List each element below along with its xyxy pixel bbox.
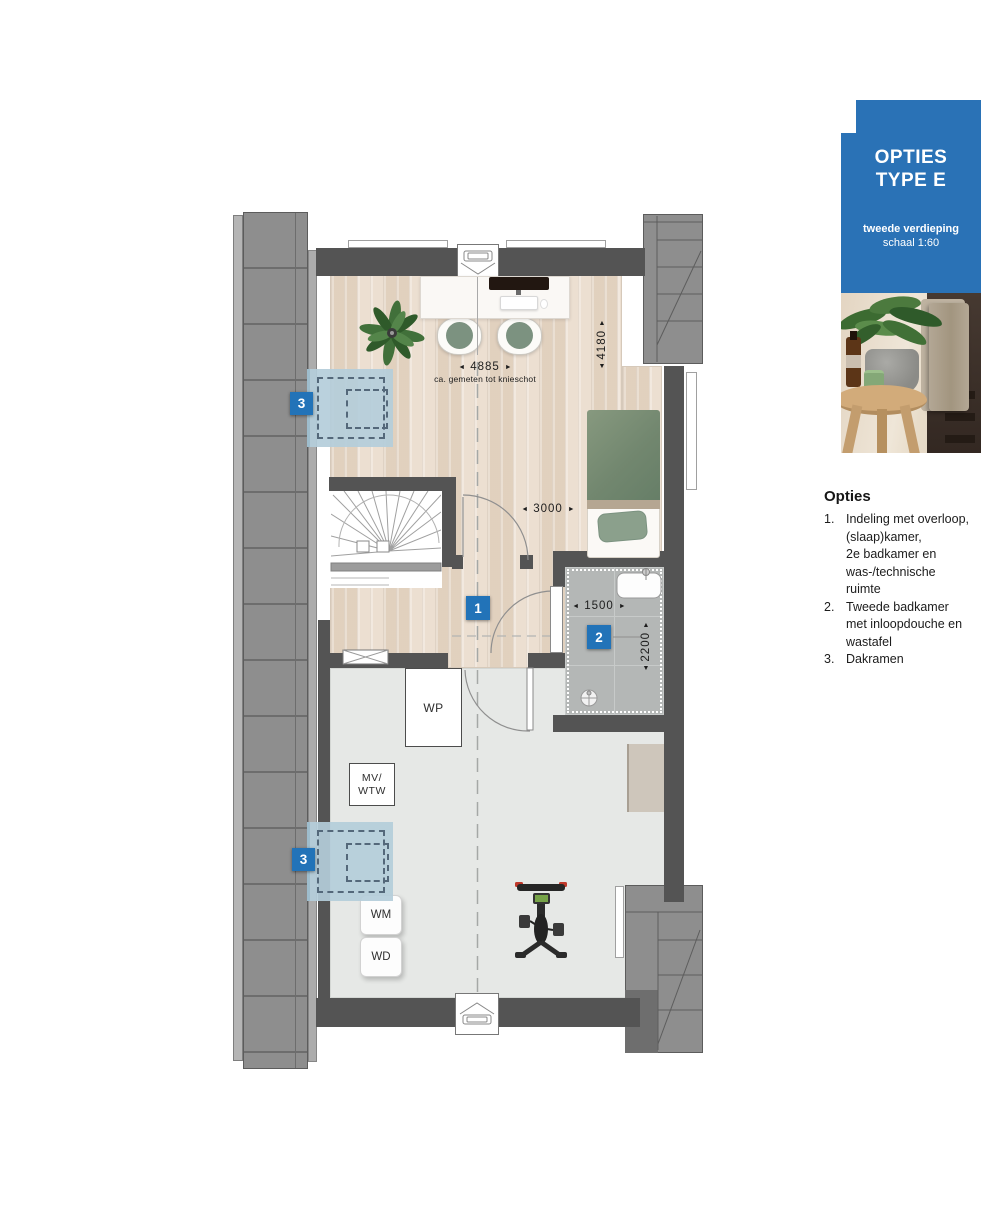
plant	[359, 300, 426, 367]
shower-drain	[581, 690, 597, 706]
option-marker-1: 1	[466, 596, 490, 620]
interior-photo	[841, 293, 981, 453]
arrow-left-icon: ◄	[521, 506, 528, 513]
exercise-bike	[515, 882, 567, 958]
door-leaf-bathroom	[550, 586, 563, 653]
option-item-text: Dakramen	[846, 651, 981, 669]
door-leaf-technical	[527, 668, 533, 730]
arrow-left-icon: ◄	[572, 603, 579, 610]
bottom-right-roof-lines	[625, 912, 703, 1050]
arrow-left-icon: ◄	[458, 364, 465, 371]
option-list-item-2: 2. Tweede badkamer met inloopdouche en w…	[824, 599, 981, 652]
options-list: 1. Indeling met overloop, (slaap)kamer, …	[824, 511, 981, 669]
arrow-down-icon: ▼	[599, 363, 606, 370]
dimension-right-height: ▲ 4180 ▼	[596, 320, 608, 370]
badge-title-line1: OPTIES	[841, 146, 981, 169]
plan-line-art	[230, 210, 705, 1080]
option-list-item-1: 1. Indeling met overloop, (slaap)kamer, …	[824, 511, 981, 599]
option-marker-3-bottom: 3	[292, 848, 315, 871]
dimension-bed-width: ◄ 3000 ►	[503, 503, 593, 515]
dimension-right-height-value: 4180	[596, 330, 608, 360]
option-item-number: 2.	[824, 599, 846, 652]
dimension-top-width: ◄ 4885 ►	[420, 361, 550, 373]
roof-window-bottom-glyph	[460, 1003, 494, 1024]
photo-stool-leg	[900, 405, 921, 453]
dimension-bath-depth: ▲ 2200 ▼	[640, 622, 652, 672]
dimension-top-width-value: 4885	[470, 361, 500, 373]
arrow-right-icon: ►	[505, 364, 512, 371]
arrow-right-icon: ►	[568, 506, 575, 513]
photo-bottle-cap	[850, 331, 857, 340]
dimension-bath-depth-value: 2200	[640, 632, 652, 662]
photo-bottle-label	[846, 355, 861, 368]
option-item-text: Indeling met overloop, (slaap)kamer, 2e …	[846, 511, 981, 599]
photo-stool-leg	[877, 409, 887, 453]
roof-window-top-glyph	[461, 251, 495, 274]
option-item-text: Tweede badkamer met inloopdouche en wast…	[846, 599, 981, 652]
option-marker-2: 2	[587, 625, 611, 649]
arrow-down-icon: ▼	[643, 665, 650, 672]
badge-subtitle-line2: schaal 1:60	[841, 236, 981, 250]
dimension-bath-width-value: 1500	[584, 600, 614, 612]
top-right-roof-lines	[643, 216, 703, 362]
sink	[617, 568, 661, 598]
option-marker-3-top: 3	[290, 392, 313, 415]
option-item-number: 3.	[824, 651, 846, 669]
options-heading: Opties	[824, 488, 871, 505]
stairs	[331, 491, 441, 585]
badge-title-line2: TYPE E	[841, 169, 981, 192]
arrow-up-icon: ▲	[599, 320, 606, 327]
badge-subtitle-line1: tweede verdieping	[841, 222, 981, 236]
arrow-up-icon: ▲	[643, 622, 650, 629]
dimension-bed-width-value: 3000	[533, 503, 563, 515]
dimension-bath-width: ◄ 1500 ►	[556, 600, 642, 612]
photo-wardrobe-slat	[945, 413, 975, 421]
dimension-top-width-note: ca. gemeten tot knieschot	[420, 374, 550, 384]
badge-notch	[841, 100, 856, 133]
photo-wardrobe-slat	[945, 435, 975, 443]
arrow-right-icon: ►	[619, 603, 626, 610]
vent-grille	[343, 650, 388, 664]
option-list-item-3: 3. Dakramen	[824, 651, 981, 669]
option-item-number: 1.	[824, 511, 846, 599]
photo-stool-leg	[842, 405, 863, 453]
options-badge: OPTIES TYPE E tweede verdieping schaal 1…	[841, 100, 981, 293]
floorplan-page: WP MV/ WTW WM WD	[0, 0, 981, 1231]
